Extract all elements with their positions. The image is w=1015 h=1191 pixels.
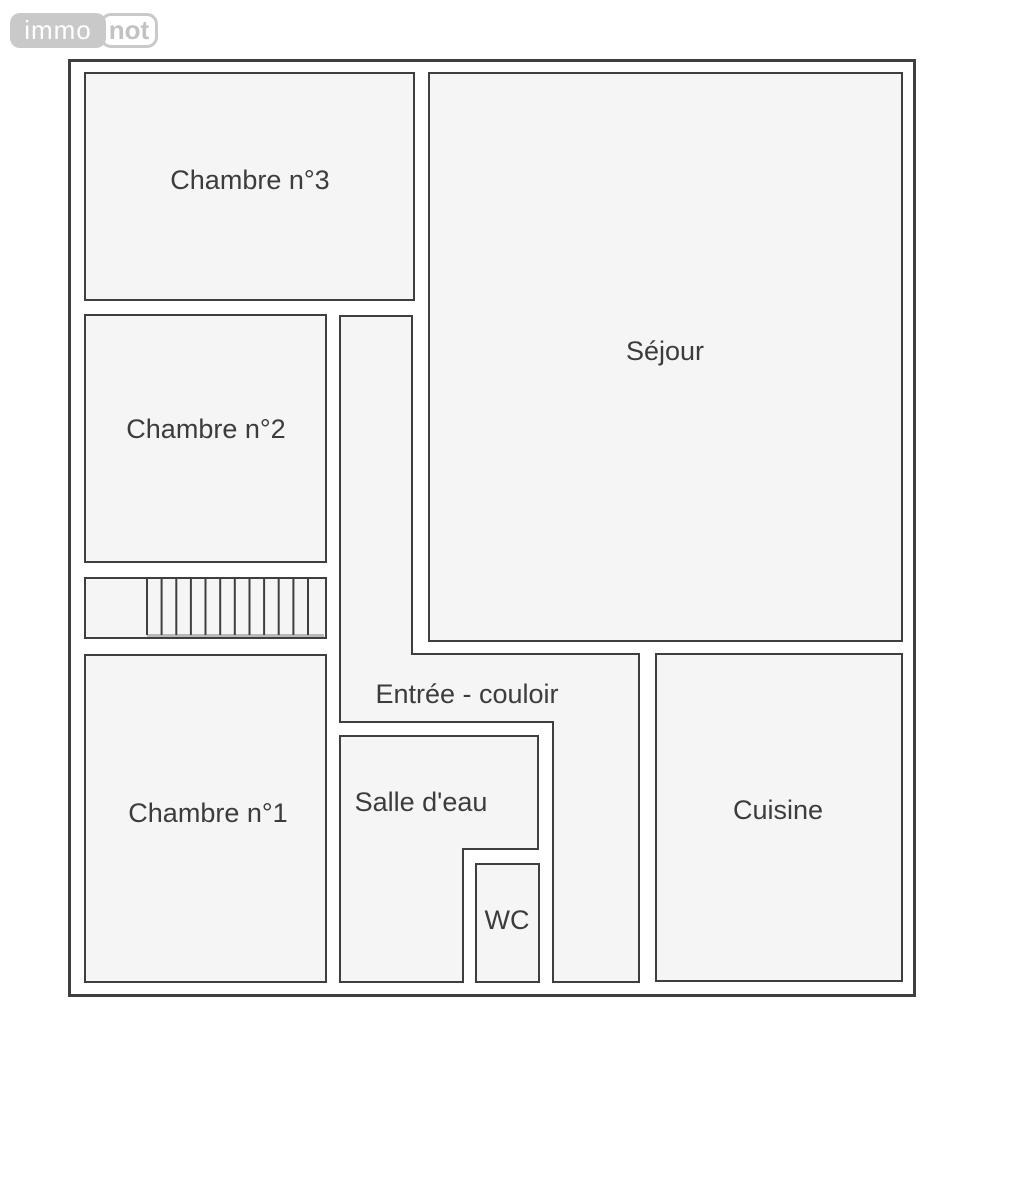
staircase: [85, 578, 326, 638]
room-couloir-label: Entrée - couloir: [375, 679, 558, 709]
room-cuisine: Cuisine: [656, 654, 902, 981]
room-salle-eau-label: Salle d'eau: [355, 787, 488, 817]
room-chambre-3-label: Chambre n°3: [170, 165, 329, 195]
room-wc: WC: [476, 864, 539, 982]
room-chambre-1-label: Chambre n°1: [128, 798, 287, 828]
room-sejour-label: Séjour: [626, 336, 704, 366]
room-chambre-2: Chambre n°2: [85, 315, 326, 562]
room-chambre-3: Chambre n°3: [85, 73, 414, 300]
room-sejour: Séjour: [429, 73, 902, 641]
room-cuisine-label: Cuisine: [733, 795, 823, 825]
room-chambre-2-label: Chambre n°2: [126, 414, 285, 444]
floor-plan: Chambre n°3 Séjour Chambre n°2: [0, 0, 1015, 1191]
room-wc-label: WC: [485, 905, 530, 935]
page: not immo Chambre n°3 Séjour Chambre n°2: [0, 0, 1015, 1191]
room-chambre-1: Chambre n°1: [85, 655, 326, 982]
